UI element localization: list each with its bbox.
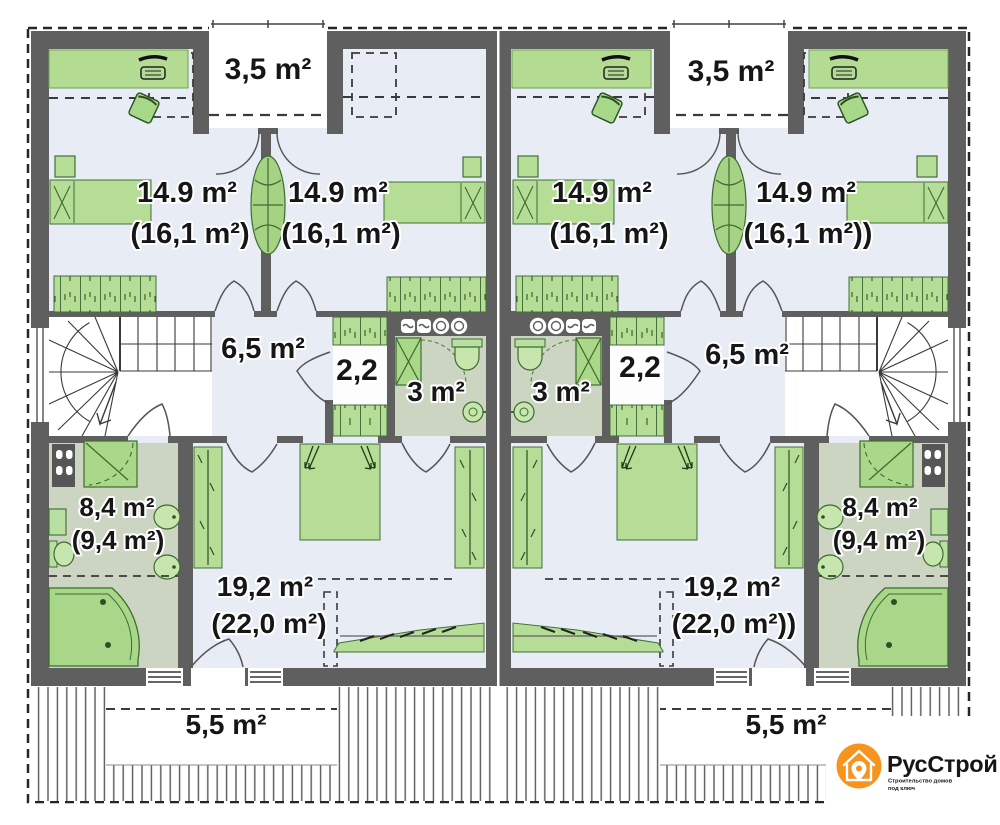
svg-text:19,2 m²: 19,2 m² [684, 571, 781, 602]
svg-text:8,4 m²: 8,4 m² [842, 492, 917, 522]
svg-text:6,5 m²: 6,5 m² [705, 339, 789, 371]
svg-text:3 m²: 3 m² [532, 376, 590, 407]
svg-text:14.9 m²: 14.9 m² [288, 177, 388, 209]
svg-text:14.9 m²: 14.9 m² [552, 177, 652, 209]
svg-text:(16,1 m²): (16,1 m²) [130, 218, 249, 250]
svg-text:5,5 m²: 5,5 m² [746, 709, 827, 740]
svg-text:Строительство домов: Строительство домов [888, 779, 953, 785]
svg-text:(16,1 m²): (16,1 m²) [549, 218, 668, 250]
svg-text:(22,0 m²): (22,0 m²) [211, 608, 326, 639]
svg-text:РусСтрой: РусСтрой [887, 751, 997, 777]
svg-text:3,5 m²: 3,5 m² [688, 55, 775, 88]
svg-text:3 m²: 3 m² [407, 376, 465, 407]
svg-text:(22,0 m²)): (22,0 m²)) [672, 608, 796, 639]
svg-text:8,4 m²: 8,4 m² [79, 492, 154, 522]
svg-text:19,2 m²: 19,2 m² [217, 571, 314, 602]
svg-text:14.9 m²: 14.9 m² [137, 177, 237, 209]
svg-text:2,2: 2,2 [619, 351, 661, 384]
svg-text:(16,1 m²): (16,1 m²) [281, 218, 400, 250]
svg-text:(9,4 m²): (9,4 m²) [72, 525, 164, 555]
svg-text:под ключ: под ключ [888, 786, 915, 792]
svg-text:2,2: 2,2 [336, 354, 378, 387]
svg-text:3,5 m²: 3,5 m² [225, 53, 312, 86]
svg-text:5,5 m²: 5,5 m² [186, 709, 267, 740]
svg-text:6,5 m²: 6,5 m² [221, 333, 305, 365]
svg-text:(9,4 m²): (9,4 m²) [833, 525, 925, 555]
svg-text:(16,1 m²)): (16,1 m²)) [744, 218, 873, 250]
svg-text:14.9 m²: 14.9 m² [756, 177, 856, 209]
